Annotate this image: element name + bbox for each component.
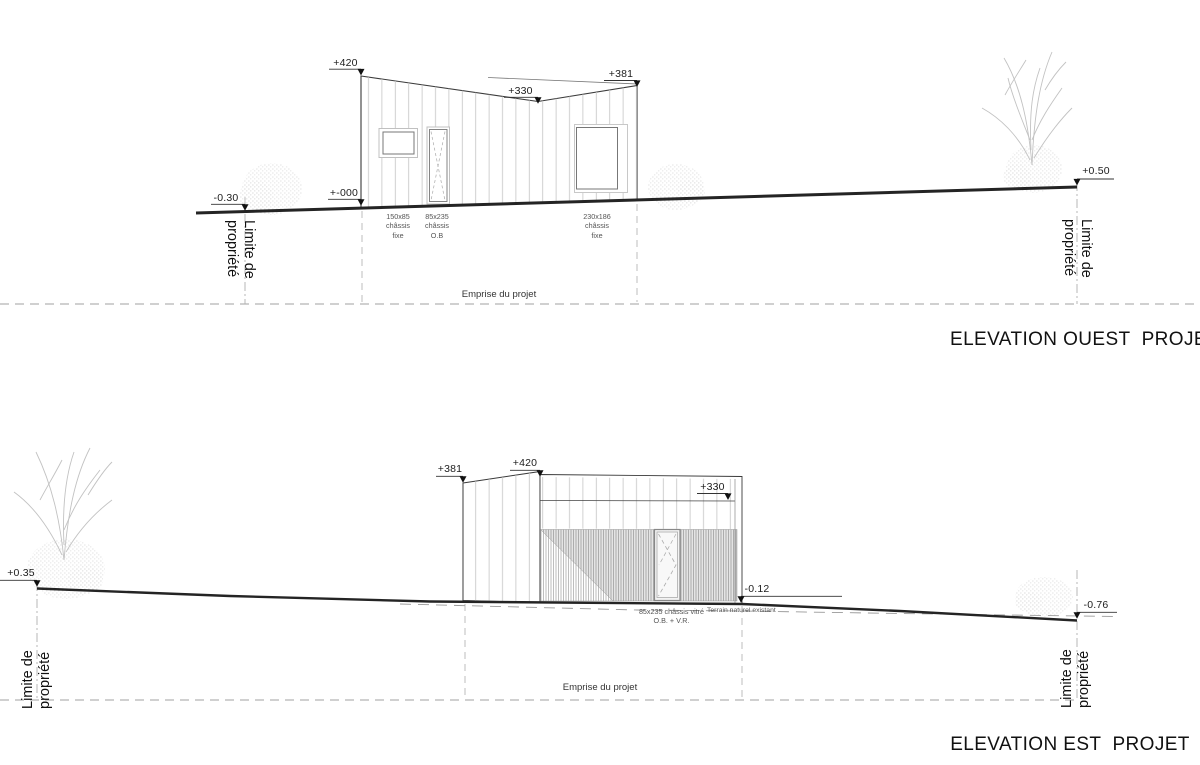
est-marker-minus076: -0.76 [1079, 599, 1113, 611]
ouest-elevation-drawing [0, 52, 1200, 304]
est-property-label-left: Limite de propriété [20, 619, 56, 709]
est-annotation-door: 85x235 châssis vitré O.B. + V.R. [624, 607, 719, 626]
ouest-title: ELEVATION OUEST PROJET [950, 329, 1190, 351]
ouest-window-right [575, 125, 628, 193]
est-glazed-door [655, 530, 681, 601]
ouest-window-left [379, 129, 418, 158]
est-bush-right [1015, 577, 1073, 617]
elevation-sheet: +420 +381 +330 +-000 -0.30 +0.50 150x85 … [0, 0, 1200, 765]
est-marker-plus035: +0.35 [4, 567, 38, 579]
ouest-marker-minus030: -0.30 [208, 192, 244, 204]
est-louver-screen [541, 530, 738, 602]
ouest-bush-mid [648, 164, 705, 210]
est-roof-330-line [540, 501, 735, 502]
est-marker-minus012: -0.12 [741, 583, 773, 595]
ouest-marker-plus050: +0.50 [1078, 165, 1114, 177]
drawing-linework [0, 0, 1200, 765]
ouest-building [361, 76, 637, 208]
ouest-marker-000: +-000 [326, 187, 362, 199]
est-marker-420: +420 [509, 457, 541, 469]
est-elevation-drawing [0, 448, 1117, 700]
ouest-marker-330: +330 [503, 85, 538, 97]
ouest-annotation-door: 85x235 châssis O.B [415, 212, 459, 240]
ouest-bush-left [239, 163, 302, 215]
est-emprise-label: Emprise du projet [530, 682, 670, 693]
est-property-label-right: Limite de propriété [1059, 618, 1095, 708]
ouest-marker-381: +381 [604, 68, 638, 80]
ouest-annotation-window-right: 230x186 châssis fixe [575, 212, 619, 240]
ouest-property-label-right: Limite de propriété [1058, 219, 1094, 309]
ouest-property-label-left: Limite de propriété [221, 220, 257, 310]
ouest-marker-420: +420 [329, 57, 362, 69]
est-annotation-terrain: Terrain naturel existant [707, 607, 802, 614]
ouest-tree-right [982, 52, 1072, 193]
ouest-annotation-window-left: 150x85 châssis fixe [376, 212, 420, 240]
est-title: ELEVATION EST PROJET [950, 734, 1190, 756]
ouest-emprise-label: Emprise du projet [429, 289, 569, 300]
est-marker-381: +381 [434, 463, 466, 475]
ouest-door [427, 127, 450, 204]
est-marker-330: +330 [696, 481, 729, 493]
